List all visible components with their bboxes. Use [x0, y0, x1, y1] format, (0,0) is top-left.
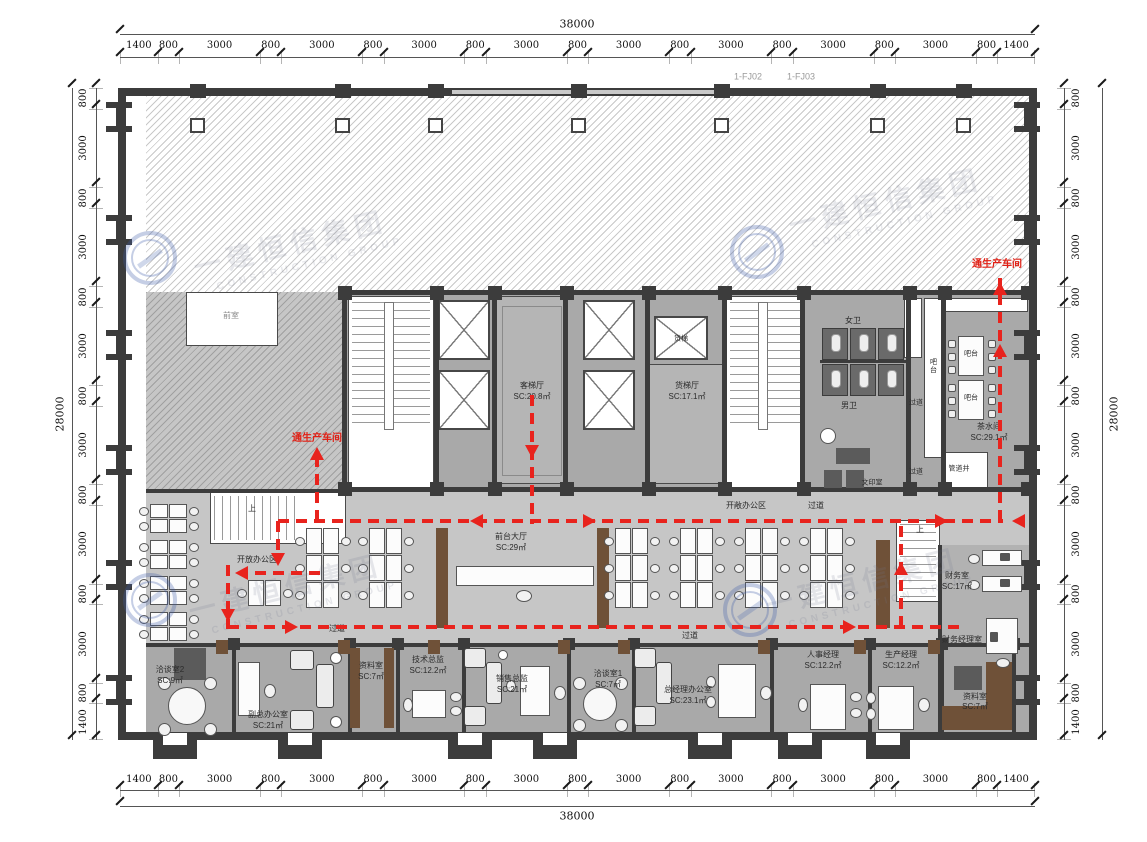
route-arrow-6: [235, 566, 248, 580]
route-arrow-12: [993, 282, 1007, 295]
route-arrow-0: [525, 445, 539, 458]
route-arrow-5: [271, 553, 285, 566]
route-arrow-1: [470, 514, 483, 528]
route-arrow-7: [221, 609, 235, 622]
route-arrow-13: [310, 447, 324, 460]
to-production-workshop-label-left: 通生产车间: [292, 434, 342, 444]
route-arrow-2: [583, 514, 596, 528]
to-production-workshop-label-right: 通生产车间: [972, 260, 1022, 270]
floor-plan-canvas: 1400800300080030008003000800300080030008…: [0, 0, 1147, 842]
route-arrow-9: [843, 620, 856, 634]
route-arrow-8: [285, 620, 298, 634]
route-arrow-11: [993, 344, 1007, 357]
route-arrow-4: [1012, 514, 1025, 528]
route-arrow-3: [935, 514, 948, 528]
route-arrow-10: [894, 562, 908, 575]
flow-route-overlay: [0, 0, 1147, 842]
